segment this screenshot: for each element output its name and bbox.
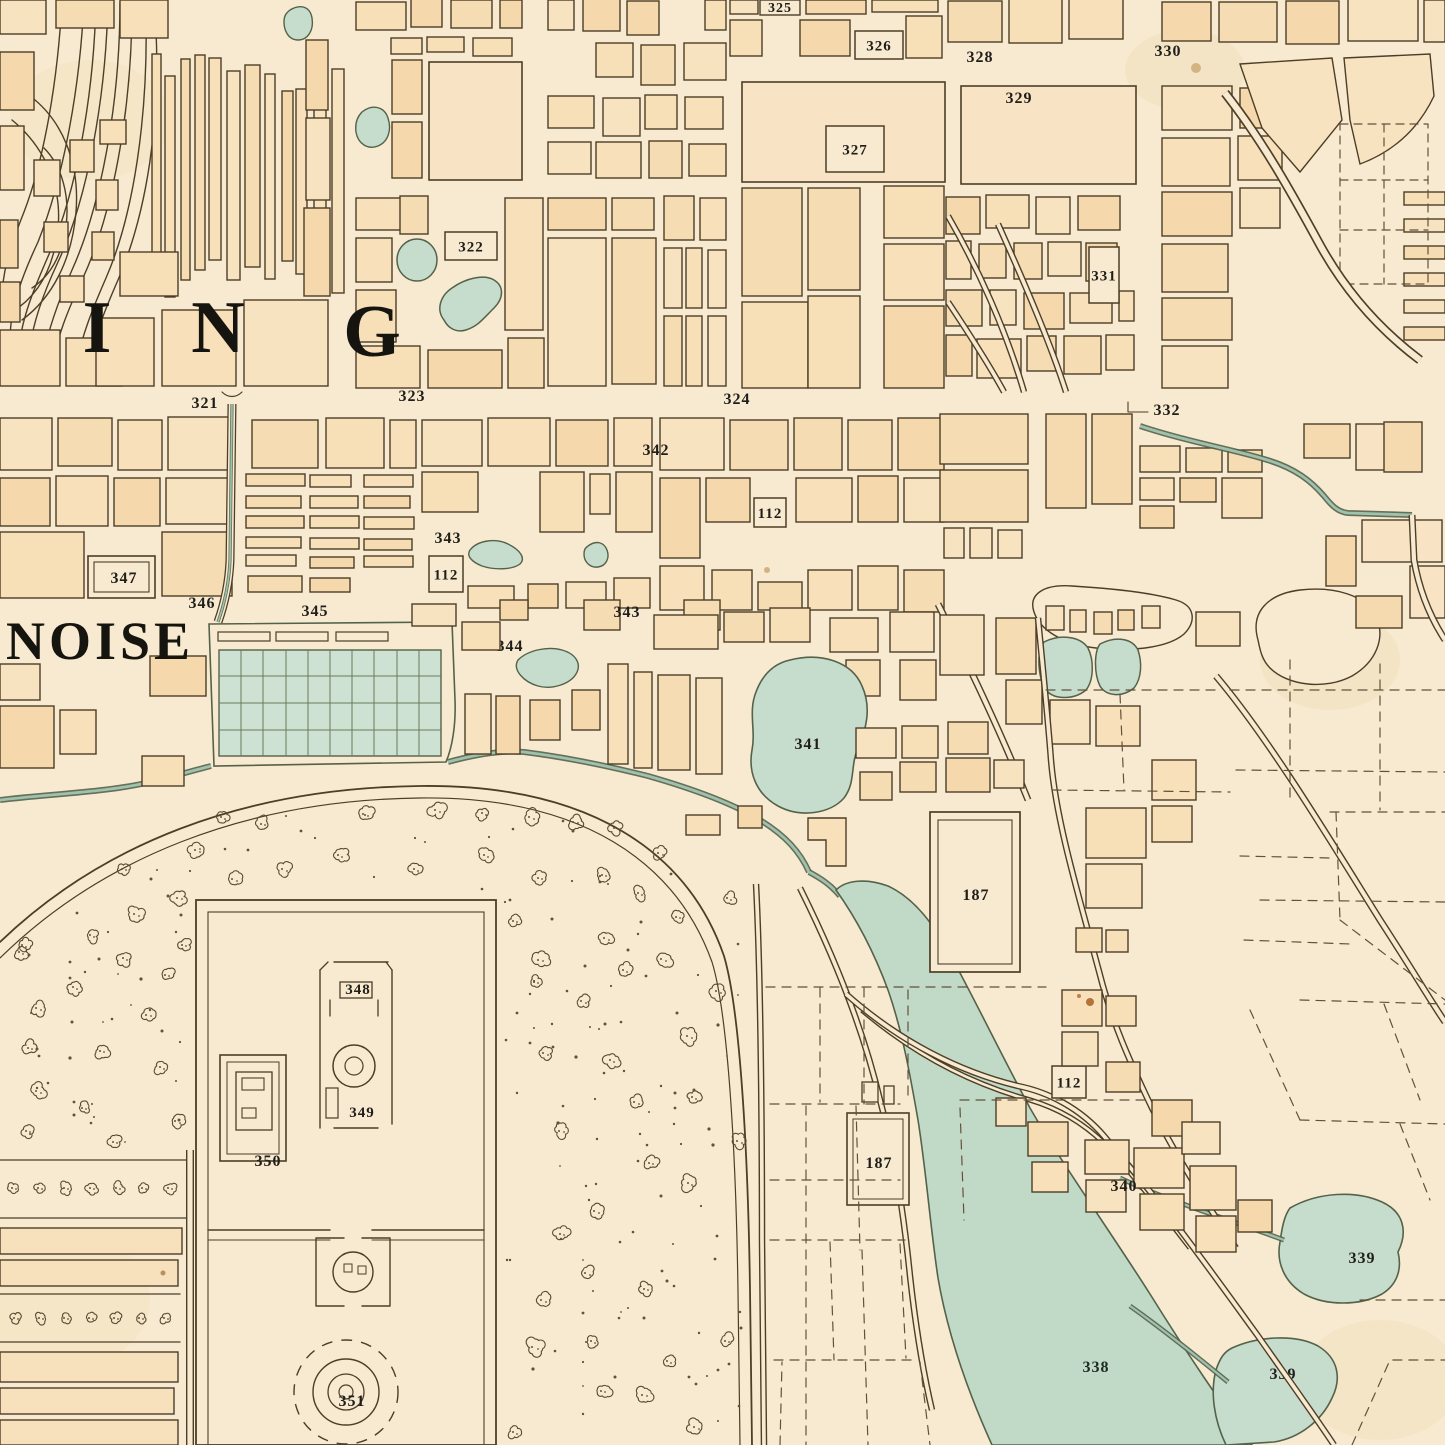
svg-text:328: 328 <box>967 49 994 66</box>
svg-text:342: 342 <box>643 442 670 459</box>
svg-text:343: 343 <box>435 530 462 547</box>
svg-text:G: G <box>343 291 401 373</box>
svg-text:338: 338 <box>1083 1359 1110 1376</box>
svg-text:324: 324 <box>724 391 751 408</box>
svg-text:345: 345 <box>302 603 329 620</box>
svg-text:325: 325 <box>768 1 792 16</box>
svg-text:NOISE: NOISE <box>6 611 194 671</box>
svg-text:326: 326 <box>866 38 892 54</box>
svg-text:351: 351 <box>339 1393 366 1410</box>
svg-text:321: 321 <box>192 395 219 412</box>
svg-text:112: 112 <box>1057 1075 1082 1091</box>
svg-text:341: 341 <box>795 736 822 753</box>
svg-text:I: I <box>83 287 112 369</box>
svg-text:323: 323 <box>399 388 426 405</box>
svg-text:322: 322 <box>458 239 484 255</box>
svg-text:331: 331 <box>1091 268 1117 284</box>
svg-text:330: 330 <box>1155 43 1182 60</box>
svg-text:348: 348 <box>345 982 371 998</box>
svg-text:187: 187 <box>866 1155 893 1172</box>
svg-text:187: 187 <box>963 887 990 904</box>
svg-text:340: 340 <box>1111 1178 1138 1195</box>
svg-text:343: 343 <box>614 604 641 621</box>
svg-text:339: 339 <box>1349 1250 1376 1267</box>
svg-text:346: 346 <box>189 595 216 612</box>
svg-text:347: 347 <box>111 570 138 587</box>
svg-text:349: 349 <box>349 1105 375 1121</box>
svg-text:327: 327 <box>842 142 868 158</box>
svg-text:N: N <box>191 287 244 369</box>
svg-text:332: 332 <box>1154 402 1181 419</box>
svg-text:350: 350 <box>255 1153 282 1170</box>
svg-text:329: 329 <box>1006 90 1033 107</box>
svg-text:112: 112 <box>758 506 783 522</box>
svg-text:112: 112 <box>434 567 459 583</box>
